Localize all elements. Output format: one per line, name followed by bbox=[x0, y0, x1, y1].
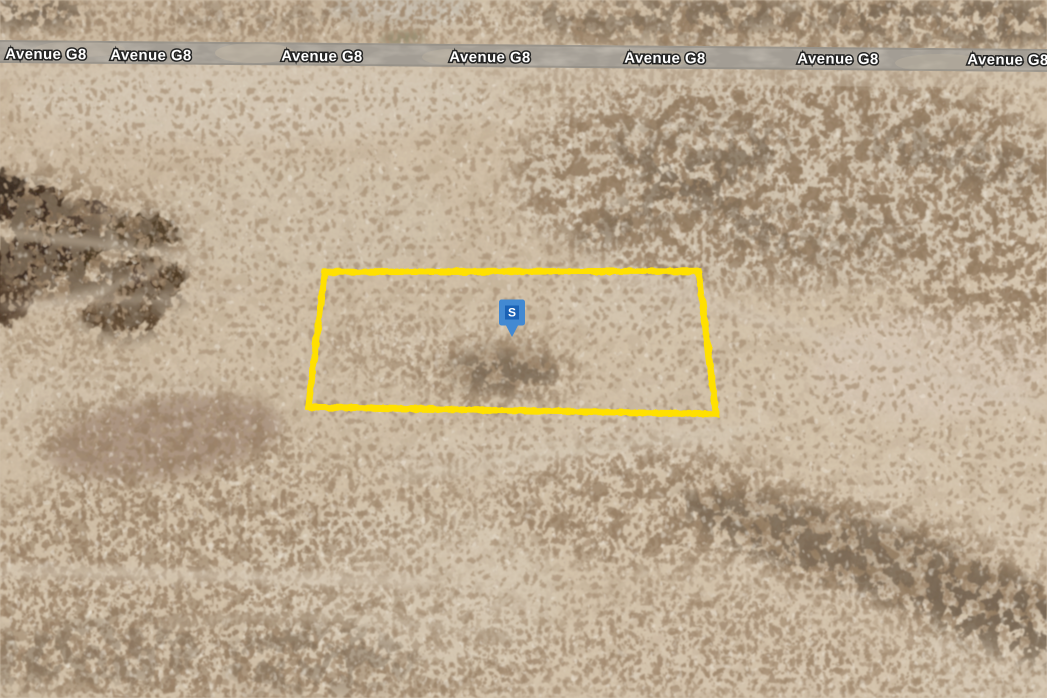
svg-text:S: S bbox=[508, 306, 516, 320]
svg-text:Avenue G8: Avenue G8 bbox=[110, 47, 192, 65]
svg-text:Avenue G8: Avenue G8 bbox=[5, 46, 87, 64]
svg-text:Avenue G8: Avenue G8 bbox=[797, 50, 879, 68]
svg-text:Avenue G8: Avenue G8 bbox=[624, 50, 706, 68]
svg-text:Avenue G8: Avenue G8 bbox=[967, 51, 1047, 69]
svg-text:Avenue G8: Avenue G8 bbox=[449, 49, 531, 67]
svg-text:Avenue G8: Avenue G8 bbox=[281, 48, 363, 66]
